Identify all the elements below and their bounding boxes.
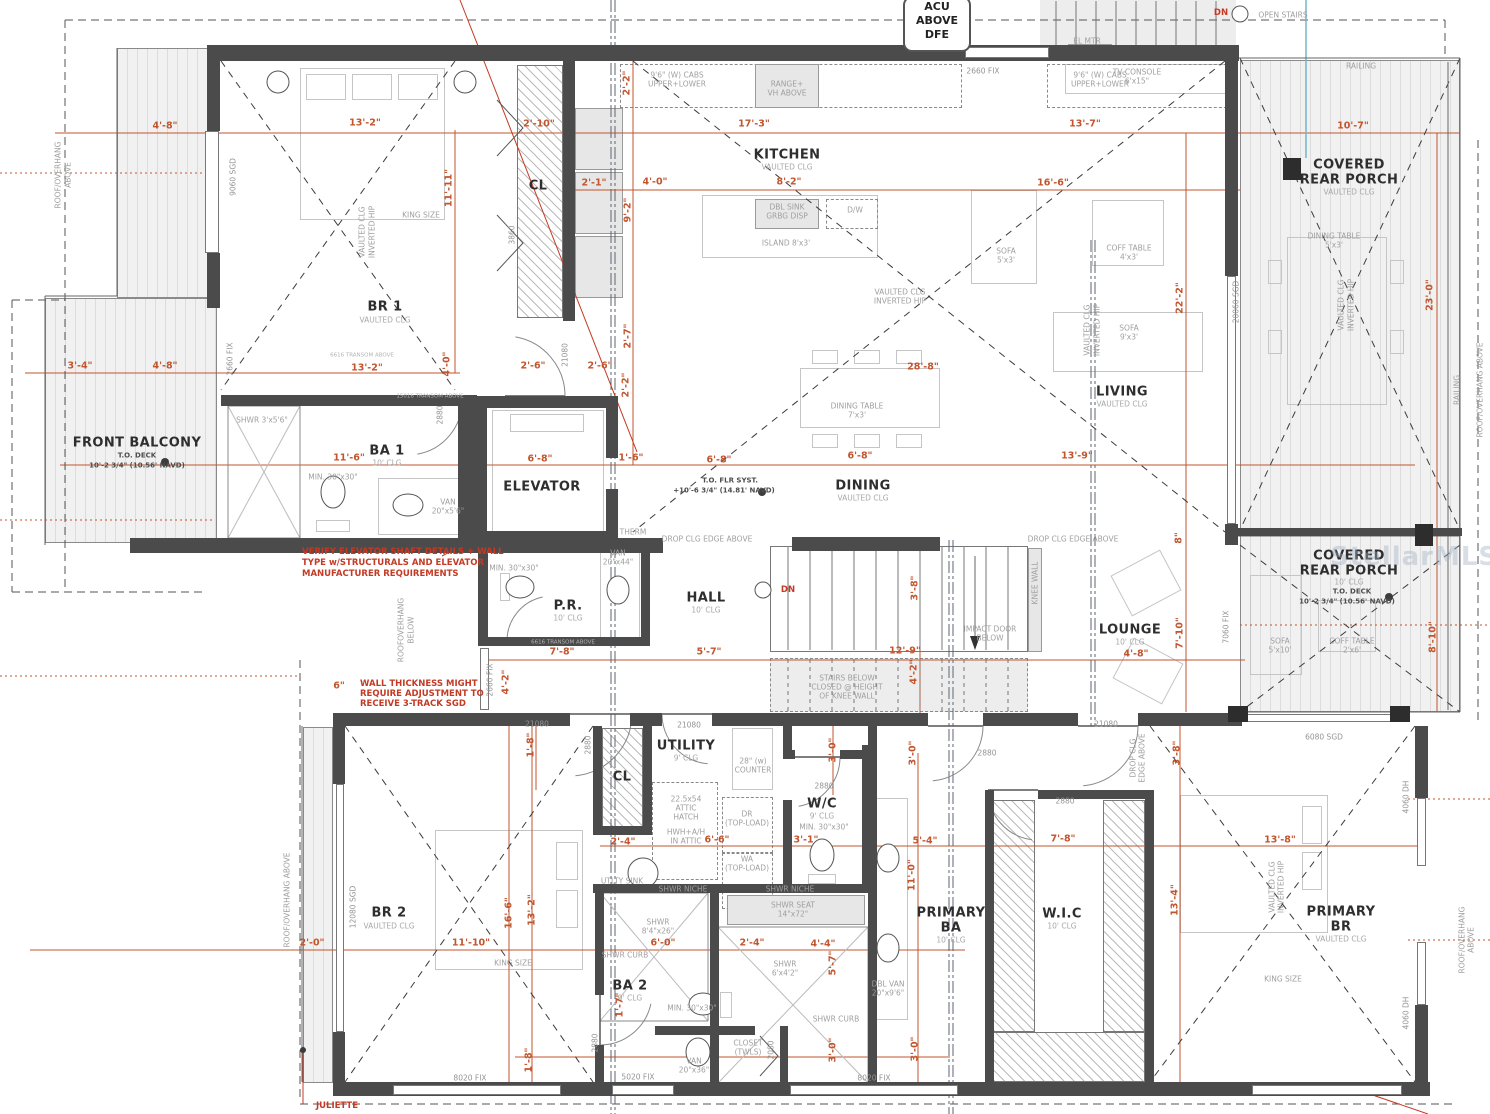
plumbing-fixture — [1232, 6, 1248, 22]
room-label: BA — [941, 922, 962, 935]
dimension-label: 1'-8" — [526, 732, 536, 757]
fixture-label: SHWR NICHE — [659, 885, 708, 893]
opening-tag: 12080 SGD — [349, 886, 357, 929]
wall-segment — [1415, 726, 1428, 798]
fixture-label: 20"x5'6" — [432, 507, 465, 515]
fixture-label: VAULTED CLG — [874, 288, 925, 296]
fixture-label: INVERTED HIP — [1347, 279, 1355, 331]
room-label: REAR PORCH — [1300, 174, 1399, 187]
fixture-label: SHWR NICHE — [766, 885, 815, 893]
dimension-label: 13'-7" — [1069, 119, 1101, 129]
fixture-label: 20"x36" — [679, 1066, 709, 1074]
fixture-label: COFF TABLE — [1329, 637, 1374, 645]
note-label: JULIETTE — [316, 1102, 358, 1111]
fixture-label: ROOFOVERHANG — [397, 598, 405, 662]
plumbing-fixture — [755, 582, 771, 598]
transom-label: 15016 TRANSOM ABOVE — [396, 394, 463, 400]
note-label: DN — [1214, 9, 1228, 18]
wall-segment — [333, 726, 345, 784]
transom-label: 6616 TRANSOM ABOVE — [531, 640, 595, 646]
wall-segment — [985, 790, 994, 1085]
window-opening — [965, 47, 1049, 58]
dimension-label: 4'-2" — [909, 659, 919, 684]
dimension-label: 3'-8" — [910, 575, 920, 600]
floor-plan: ACU ABOVE DFE StellarMLS BR 1KITCHENLIVI… — [0, 0, 1490, 1114]
fixture-label: INVERTED HIP — [1093, 304, 1101, 356]
fixture-label: 5'x3' — [997, 256, 1015, 264]
fixture-label: INVERTED HIP — [368, 206, 376, 258]
fixture-label: TV CONSOLE — [1113, 68, 1161, 76]
fixture-label: OPEN STAIRS — [1258, 11, 1307, 19]
window-opening — [1417, 798, 1426, 866]
dimension-label: 6'-8" — [706, 455, 731, 465]
dimension-label: 3'-1" — [793, 835, 818, 845]
fixture-label: UPPER+LOWER — [1071, 80, 1129, 88]
dimension-label: 7'-8" — [549, 647, 574, 657]
elevation-label: 10'-2 3/4" (10.56' NAVD) — [89, 463, 185, 470]
fixture-label: EL MTR — [1073, 37, 1101, 45]
ceiling-label: 10' CLG — [1334, 578, 1363, 586]
fixture-label: ATTIC — [675, 804, 696, 812]
fixture-label: VAULTED CLG — [358, 206, 366, 257]
fixture-label: VAN — [440, 498, 455, 506]
dimension-label: 4'-8" — [152, 121, 177, 131]
wall-segment — [983, 713, 1078, 726]
ceiling-label: 9' CLG — [810, 812, 834, 820]
wall-segment — [780, 1026, 788, 1086]
window-opening — [393, 1085, 561, 1095]
dimension-label: 3'-0" — [910, 1036, 920, 1061]
dimension-label: 4'-8" — [152, 361, 177, 371]
window-opening — [1417, 942, 1426, 1005]
note-label: WALL THICKNESS MIGHT — [360, 680, 478, 689]
opening-tag: 21080 — [525, 720, 549, 728]
plumbing-fixture — [877, 934, 899, 962]
fixture-label: 22.5x54 — [671, 795, 702, 803]
dimension-label: 13'-4" — [1170, 884, 1180, 916]
dimension-label: 2'-10" — [523, 119, 555, 129]
dimension-label: 12'-9" — [889, 646, 921, 656]
wall-segment — [1138, 713, 1242, 726]
wall-segment — [1145, 790, 1154, 1085]
fixture-label: 6'x15" — [1125, 77, 1149, 85]
dimension-label: 4'-2" — [501, 669, 511, 694]
dimension-label: 4'-0" — [642, 177, 667, 187]
fixture-label: UPPER+LOWER — [648, 80, 706, 88]
fixture-label: 5'x3' — [1325, 241, 1343, 249]
wall-segment — [475, 531, 618, 545]
dimension-label: 6" — [333, 681, 345, 691]
fixture-label: 2'x6' — [1343, 646, 1361, 654]
elevation-label: T.O. DECK — [1333, 589, 1371, 596]
wall-segment — [595, 884, 604, 995]
dimension-label: 23'-0" — [1425, 279, 1435, 311]
fixture-label: SOFA — [1119, 324, 1138, 332]
door-swing-arc — [988, 790, 1032, 840]
dimension-label: 1'-8" — [524, 1047, 534, 1072]
window-opening — [612, 1085, 674, 1095]
dimension-label: 22'-2" — [1175, 282, 1185, 314]
dimension-label: 3'-0" — [828, 737, 838, 762]
room-label: PRIMARY — [1307, 906, 1376, 919]
room-label: BR — [1331, 921, 1352, 934]
opening-tag: 7060 FIX — [1222, 610, 1230, 643]
dimension-label: 5'-7" — [696, 647, 721, 657]
fixture-label: IN ATTIC — [670, 837, 701, 845]
dimension-label: 8" — [1174, 532, 1184, 544]
room-label: LOUNGE — [1099, 624, 1161, 637]
wall-segment — [712, 713, 928, 726]
fixture-label: 14"x72" — [778, 910, 808, 918]
fixture-label: VH ABOVE — [768, 89, 807, 97]
fixture-label: SHWR CURB — [813, 1015, 860, 1023]
room-label: DINING — [835, 480, 890, 493]
opening-tag: 3860 — [508, 225, 516, 244]
acu-line: ABOVE — [905, 14, 969, 28]
door-swing-arc — [600, 1004, 651, 1045]
fixture-label: SHWR CURB — [602, 951, 649, 959]
dimension-label: 2'-1" — [581, 178, 606, 188]
opening-tag: 2880 — [591, 1033, 599, 1052]
fixture-label: OF KNEE WALL — [819, 692, 875, 700]
fixture-label: RAILING — [1346, 62, 1376, 70]
opening-tag: 2660 FIX — [966, 67, 999, 75]
ceiling-label: 10' CLG — [1047, 922, 1076, 930]
opening-tag: 9060 SGD — [229, 158, 237, 196]
wall-segment — [792, 537, 940, 551]
note-label: MANUFACTURER REQUIREMENTS — [302, 570, 459, 579]
ceiling-label: VAULTED CLG — [1096, 400, 1147, 408]
ceiling-label: 9' CLG — [674, 754, 698, 762]
wall-segment — [1415, 1005, 1428, 1096]
wall-segment — [655, 1026, 755, 1035]
dimension-label: 2'-7" — [623, 323, 633, 348]
fixture-label: BELOW — [407, 616, 415, 643]
dimension-label: 3'-0" — [908, 740, 918, 765]
opening-tag: 20060 SGD — [1232, 281, 1240, 324]
dimension-label: 4'-4" — [810, 939, 835, 949]
wall-segment — [606, 396, 618, 458]
dimension-label: 7'-8" — [1050, 834, 1075, 844]
fixture-label: SOFA — [996, 247, 1015, 255]
dimension-label: 3'-4" — [67, 361, 92, 371]
wall-segment — [475, 396, 487, 545]
dimension-label: 11'-10" — [452, 938, 490, 948]
ceiling-label: VAULTED CLG — [837, 494, 888, 502]
fixture-label: COFF TABLE — [1106, 244, 1151, 252]
wall-segment — [593, 726, 602, 834]
fixture-label: DINING TABLE — [831, 402, 884, 410]
fixture-label: RAILING — [1453, 375, 1461, 405]
note-label: RECEIVE 3-TRACK SGD — [360, 700, 466, 709]
room-label: PRIMARY — [917, 907, 986, 920]
dimension-label: 4'-0" — [442, 351, 452, 376]
ceiling-label: VAULTED CLG — [363, 922, 414, 930]
fixture-label: (TOP-LOAD) — [725, 819, 769, 827]
dimension-label: 11'-6" — [333, 453, 365, 463]
ceiling-label: 10' CLG — [1115, 638, 1144, 646]
fixture-label: ROOF/OVERHANG ABOVE — [283, 852, 291, 947]
fixture-label: UTLTY SINK — [601, 877, 643, 885]
wall-segment — [840, 750, 871, 759]
opening-tag: 2660 FIX — [226, 342, 234, 375]
opening-tag: 4060 DH — [1402, 997, 1410, 1030]
wall-segment — [783, 750, 795, 759]
dimension-label: 2'-6" — [587, 361, 612, 371]
fixture-label: KING SIZE — [494, 959, 532, 967]
fixture-label: MIN. 30"x30" — [667, 1004, 717, 1012]
ceiling-label: VAULTED CLG — [1323, 188, 1374, 196]
wall-segment — [207, 253, 220, 308]
opening-tag: 2880 — [436, 405, 444, 424]
fixture-label: COUNTER — [735, 766, 772, 774]
window-opening — [336, 784, 344, 1032]
fixture-label: 20"x44" — [603, 558, 633, 566]
dimension-label: 5'-7" — [828, 950, 838, 975]
wall-segment — [643, 726, 652, 834]
dimension-label: 3'-0" — [828, 1037, 838, 1062]
opening-tag: 2880 — [977, 749, 996, 757]
wall-segment — [207, 45, 1239, 61]
ceiling-label: 10' CLG — [372, 459, 401, 467]
ceiling-label: 10' CLG — [936, 936, 965, 944]
wall-segment — [606, 489, 618, 545]
dimension-label: 2'-4" — [739, 938, 764, 948]
fixture-label: DR — [742, 810, 753, 818]
opening-tag: 8020 FIX — [453, 1074, 486, 1082]
fixture-label: DROP CLG — [1129, 738, 1137, 777]
note-label: REQUIRE ADJUSTMENT TO — [360, 690, 484, 699]
fixture-label: ABOVE — [1467, 927, 1475, 953]
room-label: P.R. — [554, 600, 583, 613]
dimension-label: 6'-8" — [527, 454, 552, 464]
room-label: UTILITY — [657, 740, 715, 753]
opening-tag: 21080 — [561, 343, 569, 367]
dimension-label: 13'-8" — [1264, 835, 1296, 845]
fixture-label: DROP CLG EDGE ABOVE — [662, 535, 753, 543]
opening-tag: 2880 — [814, 782, 833, 790]
door-swing-arc — [933, 726, 983, 781]
ceiling-label: VAULTED CLG — [359, 316, 410, 324]
wall-segment — [630, 713, 662, 726]
wall-segment — [985, 790, 990, 799]
dimension-label: 1'-6" — [618, 453, 643, 463]
fixture-label: ISLAND 8'x3' — [762, 239, 810, 247]
fixture-label: SOFA — [1270, 637, 1289, 645]
wall-segment — [641, 546, 650, 646]
ceiling-label: VAULTED CLG — [1315, 935, 1366, 943]
dimension-label: 5'-4" — [912, 836, 937, 846]
plumbing-fixture — [267, 71, 289, 93]
fixture-label: HWH+A/H — [667, 828, 705, 836]
room-label: CL — [529, 180, 548, 193]
fixture-label: 5'x10' — [1269, 646, 1292, 654]
fixture-label: KNEE WALL — [1031, 562, 1039, 605]
window-opening — [1252, 1085, 1402, 1095]
fixture-label: DROP CLG EDGE ABOVE — [1028, 535, 1119, 543]
fixture-label: 28" (w) — [739, 757, 766, 765]
fixture-label: KING SIZE — [402, 211, 440, 219]
porch-post — [1228, 706, 1248, 722]
window-opening — [1243, 714, 1403, 722]
room-label: KITCHEN — [754, 149, 821, 162]
dimension-label: 13'-2" — [527, 894, 537, 926]
ceiling-label: 10' CLG — [691, 606, 720, 614]
fixture-label: BELOW — [976, 634, 1003, 642]
room-label: HALL — [686, 592, 725, 605]
dimension-label: 2'-2" — [621, 372, 631, 397]
porch-post — [1390, 706, 1410, 722]
room-label: W.I.C — [1042, 908, 1082, 921]
dimension-label: 8'-2" — [776, 177, 801, 187]
ceiling-label: VAULTED CLG — [761, 163, 812, 171]
dimension-label: 7'-10" — [1175, 617, 1185, 649]
opening-tag: 2880 — [584, 735, 592, 754]
dimension-label: 3'-8" — [1172, 740, 1182, 765]
elevation-label: +10'-6 3/4" (14.81' NAVD) — [673, 488, 775, 495]
opening-tag: 5020 FIX — [621, 1073, 654, 1081]
fixture-label: 6'x4'2" — [772, 969, 798, 977]
fixture-label: RANGE+ — [771, 80, 803, 88]
wall-segment — [593, 826, 652, 835]
opening-tag: 4060 DH — [1402, 781, 1410, 814]
fixture-label: ABOVE — [64, 162, 72, 188]
fixture-label: VAULTED CLG — [1268, 861, 1276, 912]
room-label: BR 1 — [367, 301, 402, 314]
opening-tag: 21080 — [677, 721, 701, 729]
plumbing-fixture — [393, 494, 423, 516]
window-opening — [790, 1085, 958, 1095]
fixture-label: 4'x3' — [1120, 253, 1138, 261]
note-label: DN — [781, 586, 795, 595]
fixture-label: 9'6" (W) CABS — [650, 71, 703, 79]
plumbing-fixture — [506, 576, 534, 598]
fixture-label: SHWR — [773, 960, 796, 968]
fixture-label: CLOSET — [733, 1039, 762, 1047]
fixture-label: 8'4"x26" — [642, 927, 675, 935]
dimension-label: 16'-6" — [1037, 178, 1069, 188]
fixture-label: DBL SINK — [770, 203, 805, 211]
fixture-label: INVERTED HIP — [1277, 861, 1285, 913]
opening-tag: 6080 SGD — [1305, 733, 1343, 741]
dimension-label: 11'-0" — [907, 859, 917, 891]
dimension-label: 10'-7" — [1337, 121, 1369, 131]
fixture-label: VAULTED CLG — [1083, 304, 1091, 355]
room-label: FRONT BALCONY — [73, 437, 202, 450]
fixture-label: 20"x9'6" — [872, 989, 905, 997]
room-label: ELEVATOR — [503, 481, 580, 494]
dimension-label: 4'-8" — [1123, 649, 1148, 659]
dimension-label: 8'-10" — [1428, 621, 1438, 653]
fixture-label: HATCH — [673, 813, 698, 821]
acu-line: DFE — [905, 28, 969, 42]
dimension-label: 6'-8" — [847, 451, 872, 461]
fixture-label: CLOSED @ HEIGHT — [811, 683, 882, 691]
fixture-label: IMPACT DOOR — [964, 625, 1017, 633]
fixture-label: EDGE ABOVE — [1138, 733, 1146, 782]
wall-segment — [868, 726, 877, 1086]
opening-tag: 21080 — [1094, 720, 1118, 728]
opening-tag: 8020 FIX — [857, 1074, 890, 1082]
dimension-label: 2'-4" — [610, 837, 635, 847]
dimension-label: 13'-2" — [351, 363, 383, 373]
fixture-label: WA — [741, 855, 753, 863]
room-label: BA 1 — [369, 445, 404, 458]
dimension-label: 13'-9" — [1061, 451, 1093, 461]
elevation-label: T.O. FLR SYST. — [702, 478, 758, 485]
note-label: TYPE w/STRUCTURALS AND ELEVATOR — [302, 559, 484, 568]
fixture-label: D/W — [847, 206, 863, 214]
dimension-label: 13'-2" — [349, 118, 381, 128]
opening-tag: 2880 — [1055, 797, 1074, 805]
opening-tag: 2080 — [767, 1040, 775, 1059]
wall-segment — [593, 884, 875, 893]
fixture-label: SHWR 3'x5'6" — [236, 416, 288, 424]
acu-above-dfe-box: ACU ABOVE DFE — [903, 0, 971, 52]
room-label: W/C — [807, 798, 837, 811]
wall-segment — [1225, 61, 1238, 276]
dimension-label: 28'-8" — [907, 362, 939, 372]
fixture-label: MIN. 30"x30" — [489, 564, 539, 572]
fixture-label: (TOP-LOAD) — [725, 864, 769, 872]
room-label: BA 2 — [612, 980, 647, 993]
dimension-label: 17'-3" — [738, 119, 770, 129]
room-label: LIVING — [1096, 386, 1148, 399]
fixture-label: VAN — [610, 549, 625, 557]
opening-tag: 2660 FIX — [486, 663, 494, 696]
acu-line: ACU — [905, 0, 969, 14]
fixture-label: ROOF/OVERHANG — [1458, 907, 1466, 974]
dimension-label: 2'-2" — [622, 70, 632, 95]
watermark: StellarMLS — [1330, 542, 1490, 572]
wall-segment — [207, 61, 220, 131]
wall-segment — [475, 396, 618, 408]
fixture-label: 9'x3' — [1120, 333, 1138, 341]
transom-label: 6616 TRANSOM ABOVE — [330, 353, 394, 359]
fixture-label: STAIRS BELOW — [819, 674, 875, 682]
fixture-label: MIN. 30"x30" — [308, 473, 358, 481]
fixture-label: (TWLS) — [735, 1048, 762, 1056]
window-opening — [205, 131, 219, 253]
dimension-label: 11'-11" — [444, 169, 454, 207]
fixture-label: ROOF/OVERHANG ABOVE — [1476, 342, 1484, 437]
dimension-label: 6'-6" — [704, 835, 729, 845]
plumbing-fixture — [454, 71, 476, 93]
fixture-label: GRBG DISP — [766, 212, 808, 220]
dimension-label: 2'-6" — [520, 361, 545, 371]
dimension-label: 1'-7" — [615, 992, 625, 1017]
fixture-label: DINING TABLE — [1308, 232, 1361, 240]
room-label: CL — [613, 771, 632, 784]
wall-segment — [783, 800, 792, 890]
fixture-label: SHWR — [646, 918, 669, 926]
dimension-label: 6'-0" — [650, 938, 675, 948]
fixture-label: KING SIZE — [1264, 975, 1302, 983]
fixture-label: ROOF/OVERHANG — [54, 142, 62, 209]
door-swing-arc — [507, 597, 543, 641]
note-label: VERIFY ELEVATOR SHAFT DETAILS + WALL — [302, 548, 504, 557]
dimension-label: 2'-0" — [299, 938, 324, 948]
fixture-label: INVERTED HIP — [874, 297, 926, 305]
fixture-label: MIN. 30"x30" — [799, 823, 849, 831]
dimension-label: 9'-2" — [623, 197, 633, 222]
ceiling-label: 10' CLG — [553, 614, 582, 622]
fixture-label: DBL VAN — [872, 980, 905, 988]
room-label: COVERED — [1313, 159, 1385, 172]
fixture-label: SHWR SEAT — [771, 901, 815, 909]
fixture-label: 7'x3' — [848, 411, 866, 419]
elevation-marker — [300, 1047, 306, 1053]
